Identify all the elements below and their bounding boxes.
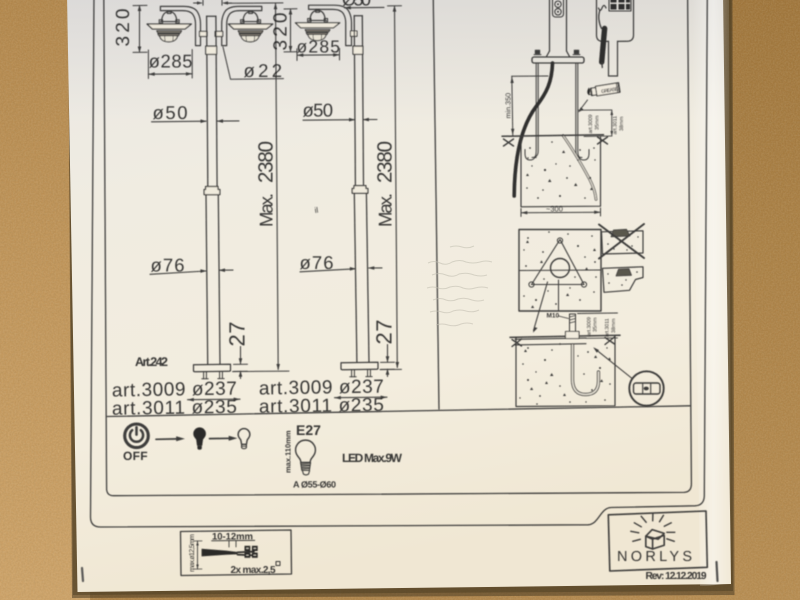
svg-text:art.3009: art.3009: [588, 114, 594, 133]
svg-text:A Ø55-Ø60: A Ø55-Ø60: [293, 480, 336, 490]
svg-text:38mm: 38mm: [619, 117, 625, 131]
svg-text:art.3011 ø235: art.3011 ø235: [259, 395, 384, 418]
svg-text:M10: M10: [547, 313, 560, 320]
svg-text:27: 27: [225, 322, 250, 347]
svg-text:320: 320: [113, 9, 134, 47]
svg-text:35mm: 35mm: [593, 318, 599, 332]
svg-text:max.110mm: max.110mm: [284, 430, 293, 473]
svg-text:27: 27: [372, 320, 397, 345]
svg-text:320: 320: [271, 13, 292, 51]
svg-text:Art.242: Art.242: [135, 355, 168, 369]
svg-text:ø76: ø76: [300, 252, 334, 273]
svg-text:10-12mm: 10-12mm: [212, 532, 253, 543]
svg-text:max.ø12,5mm: max.ø12,5mm: [189, 534, 196, 572]
svg-text:OFF: OFF: [123, 449, 148, 463]
svg-text:min.350: min.350: [504, 93, 513, 119]
svg-text:35mm: 35mm: [595, 116, 601, 130]
svg-text:art.3011: art.3011: [605, 318, 611, 337]
svg-text:2380: 2380: [255, 141, 278, 183]
svg-text:ø22: ø22: [244, 60, 283, 81]
svg-text:~300: ~300: [546, 205, 563, 214]
svg-text:art.3011 ø235: art.3011 ø235: [112, 397, 237, 420]
svg-text:Ø50: Ø50: [342, 0, 371, 10]
svg-text:art.3011: art.3011: [613, 116, 619, 135]
svg-text:38mm: 38mm: [611, 319, 617, 333]
svg-text:ø50: ø50: [153, 102, 188, 123]
svg-text:ø50: ø50: [303, 100, 334, 121]
svg-text:E27: E27: [296, 422, 321, 438]
svg-text:Max.: Max.: [375, 193, 396, 227]
svg-text:Max.: Max.: [256, 193, 277, 227]
svg-text:ø285: ø285: [149, 51, 193, 72]
svg-text:2380: 2380: [374, 141, 397, 183]
svg-text:ø76: ø76: [151, 255, 185, 276]
svg-text:LED Max.9W: LED Max.9W: [342, 451, 403, 465]
svg-text:NORLYS: NORLYS: [617, 549, 695, 565]
svg-text:2x max.2,5: 2x max.2,5: [231, 565, 276, 576]
svg-text:Rev: 12.12.2019: Rev: 12.12.2019: [646, 571, 707, 582]
